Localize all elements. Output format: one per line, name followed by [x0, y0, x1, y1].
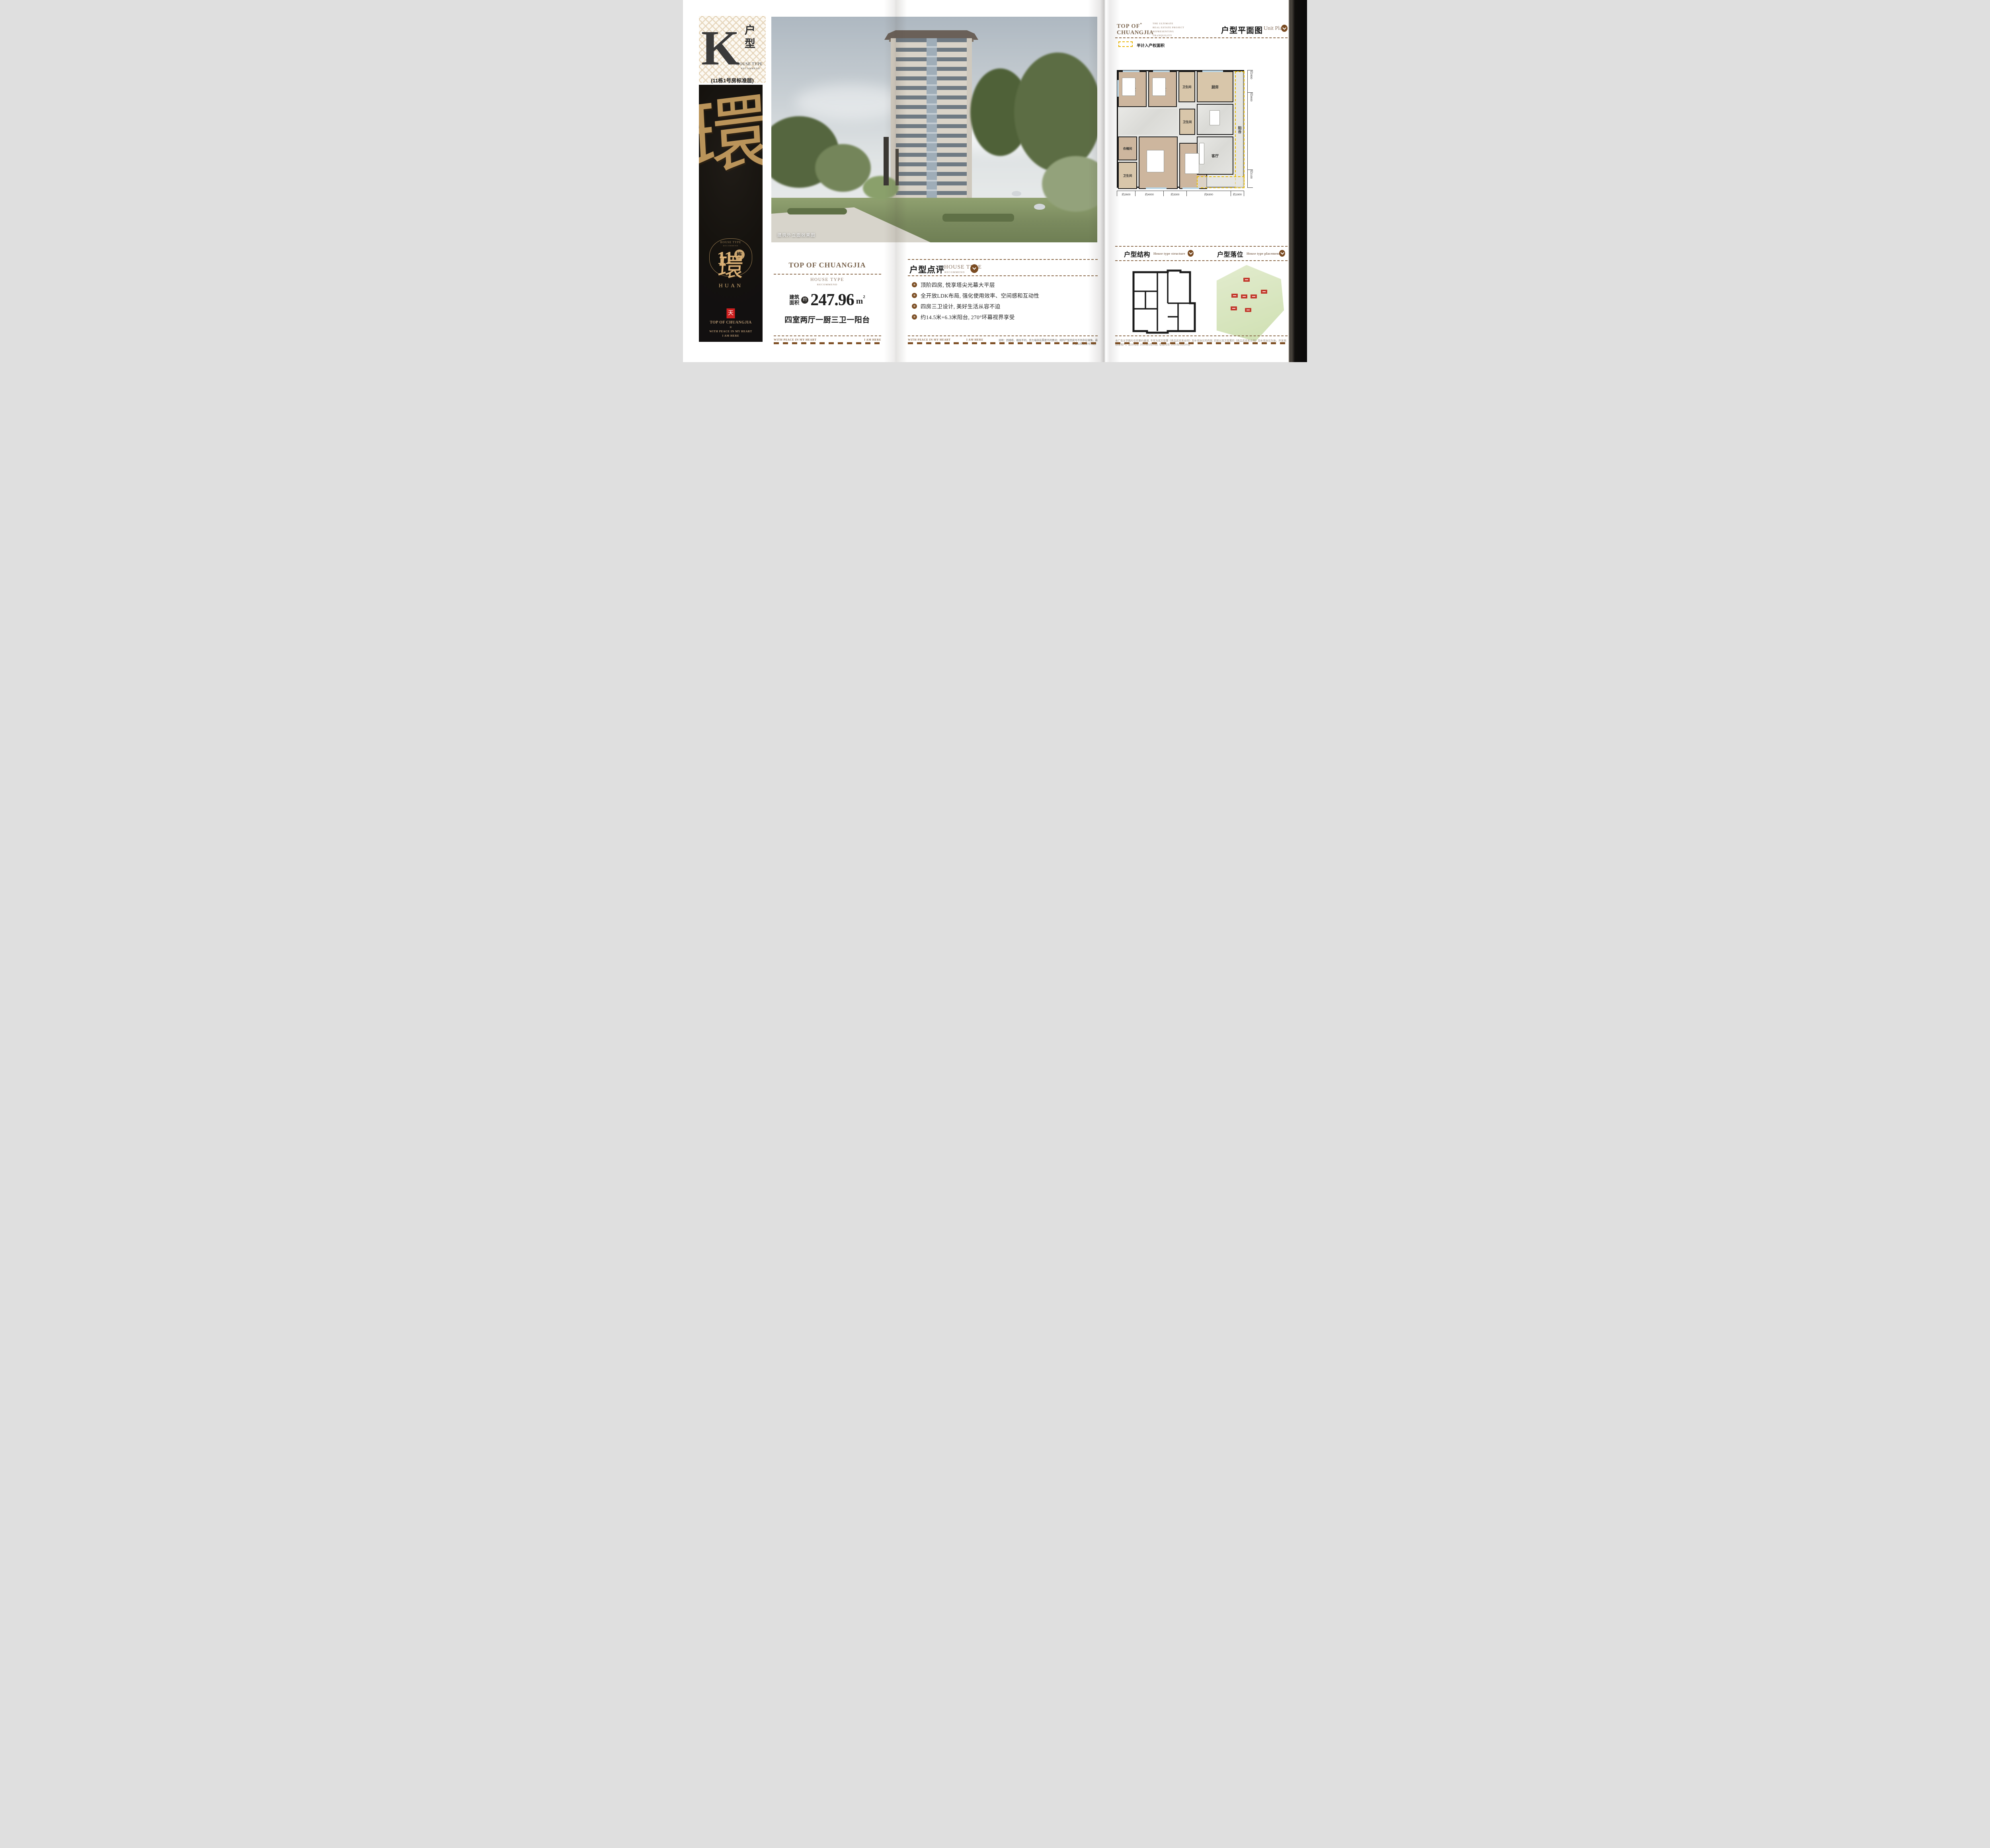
review-bullet-2: ✳ 全开放LDK布局, 强化使用效率、空间感和互动性	[912, 292, 1095, 298]
house-type-cn-char2: 型	[745, 38, 755, 49]
building-block-marker	[1231, 306, 1237, 310]
summary-en: HOUSE TYPE	[773, 277, 882, 282]
building-block-marker	[1251, 294, 1257, 298]
sofa	[1199, 143, 1204, 164]
divider	[1115, 260, 1288, 261]
hedge	[942, 214, 1014, 222]
divider-thick	[774, 342, 881, 344]
building-render-photo: 建筑外立面效果图	[771, 17, 1097, 242]
footer-motto-right: I AM HERE	[966, 338, 983, 341]
huan-pinyin: HUAN	[699, 283, 763, 289]
dimension-label: 约1900	[1231, 192, 1244, 196]
back-cover-edge	[1288, 0, 1307, 362]
building-block-marker-highlighted	[1245, 308, 1251, 312]
room-bathroom-3: 卫生间	[1179, 109, 1195, 135]
divider	[1115, 37, 1288, 38]
half-area-legend-swatch	[1118, 41, 1133, 47]
half-area-legend-label: 半计入产权面积	[1137, 42, 1165, 48]
review-bullet-text: 四房三卫设计, 美好生活从容不迫	[921, 302, 1001, 310]
room-corridor	[1119, 109, 1178, 135]
dimension-segment: 约2800	[1247, 70, 1253, 92]
divider	[908, 335, 1098, 336]
brand-logo-star: *	[1140, 22, 1143, 26]
gate-pylon	[895, 149, 899, 185]
room-cloakroom: 衣帽间	[1118, 136, 1137, 160]
bed	[1152, 78, 1166, 96]
placement-section-title: 户型落位	[1217, 249, 1243, 259]
hedge	[787, 208, 847, 214]
banner-motto-line1: WITH PEACE IN MY HEART	[699, 330, 763, 333]
asterisk-bullet-icon: ✳	[912, 304, 917, 309]
structure-section-en: House type structure	[1153, 251, 1185, 255]
window	[1146, 187, 1167, 189]
tree	[815, 144, 871, 192]
bed	[1147, 150, 1164, 172]
window	[1117, 80, 1119, 97]
room-label: 厨房	[1212, 84, 1219, 90]
dimension-label: 约9600	[1249, 93, 1253, 170]
dimension-label: 约2100	[1249, 170, 1253, 187]
room-label: 衣帽间	[1123, 146, 1132, 151]
summary-brand-title: TOP OF CHUANGJIA	[773, 261, 882, 269]
house-type-badge: K 户 型 HOUSE TYPE RECOMMEND	[699, 16, 766, 83]
review-title: 户型点评	[909, 263, 944, 275]
building-glass-core	[927, 38, 937, 205]
building-block-marker	[1243, 278, 1250, 282]
building-block-marker	[1261, 290, 1267, 294]
room-label: 卫生间	[1182, 85, 1192, 89]
dimension-segment: 约2600	[1117, 191, 1135, 196]
bed	[1185, 153, 1199, 174]
asterisk-bullet-icon: ✳	[912, 314, 917, 320]
chevron-down-icon	[970, 264, 978, 273]
deer-sculpture	[1012, 191, 1021, 196]
room-layout-text: 四室两厅一厨三卫一阳台	[773, 314, 882, 325]
brand-tagline-3: REPRESENTING	[1153, 30, 1174, 33]
chevron-down-icon	[1188, 250, 1194, 257]
divider-thick	[1115, 342, 1288, 344]
house-type-en-sub: RECOMMEND	[741, 68, 760, 70]
dimension-label: 约3300	[1164, 192, 1186, 196]
window	[1182, 187, 1199, 189]
building-block-marker	[1231, 294, 1238, 298]
placement-site-map	[1209, 263, 1284, 341]
divider	[1115, 246, 1288, 247]
badge-subtitle: (11栋1号房标准层)	[694, 76, 771, 84]
red-seal-icon: 天	[727, 308, 735, 318]
asterisk-bullet-icon: ✳	[912, 293, 917, 298]
review-bullet-4: ✳ 约14.5米+6.3米阳台, 270°环幕视界享受	[912, 314, 1095, 320]
divider	[908, 259, 1098, 260]
banner-frame-en: HOUSE TYPE	[699, 241, 763, 244]
area-label: 建筑 面积	[789, 294, 799, 306]
chevron-down-icon	[1281, 25, 1288, 32]
area-unit: m2	[856, 294, 865, 306]
banner-motto-line2: I AM HERE	[699, 334, 763, 337]
tree	[1014, 53, 1097, 172]
floor-plan: 卧室 卧室 卫生间 厨房 卫生间 餐厅 衣帽间 卫生间 主卧 卧室 客厅 阳台	[1117, 70, 1244, 188]
placement-section-en: House type placement	[1247, 251, 1280, 255]
house-type-en: HOUSE TYPE	[736, 62, 763, 66]
brochure-spread: K 户 型 HOUSE TYPE RECOMMEND (11栋1号房标准层) 環…	[683, 0, 1307, 362]
cloud	[795, 84, 907, 120]
area-unit-m: m	[856, 296, 863, 306]
chevron-down-icon	[1279, 250, 1285, 257]
footer-motto-left: WITH PEACE IN MY HEART	[774, 338, 817, 341]
room-balcony-terrace	[1197, 176, 1245, 188]
house-type-cn: 户 型	[745, 25, 755, 49]
dimension-label: 约2600	[1117, 192, 1135, 196]
room-bathroom-2: 卫生间	[1118, 162, 1137, 189]
brand-logo-line2: CHUANGJIA	[1117, 29, 1153, 36]
house-type-letter: K	[701, 18, 739, 78]
review-en-sub: RECOMMEND	[944, 271, 965, 274]
building-banner: 環 HOUSE TYPE RECOMMEND 11栋 環 HUAN 天 TOP …	[699, 85, 763, 342]
brand-logo-text1: TOP OF	[1117, 23, 1140, 29]
review-bullet-text: 全开放LDK布局, 强化使用效率、空间感和互动性	[921, 291, 1039, 299]
footer-motto-left: WITH PEACE IN MY HEART	[908, 338, 951, 341]
dimension-segment: 约4000	[1135, 191, 1163, 196]
brand-tagline-2: REAL ESTATE PROJECT	[1153, 26, 1184, 29]
banner-frame-sub: RECOMMEND	[699, 245, 763, 247]
divider-thick	[908, 342, 1098, 344]
area-label-top: 建筑	[789, 294, 799, 300]
review-bullet-1: ✳ 顶阶四房, 悦享塔尖光幕大平层	[912, 281, 1095, 288]
area-label-bottom: 面积	[789, 300, 799, 306]
divider	[774, 274, 881, 275]
window	[1123, 70, 1139, 72]
dimension-label: 约2800	[1249, 70, 1253, 92]
photo-caption: 建筑外立面效果图	[777, 232, 816, 238]
deer-sculpture	[1034, 204, 1045, 210]
brand-logo-line1: TOP OF*	[1117, 22, 1142, 30]
divider	[908, 275, 1098, 276]
brand-tagline-4: TRANQUILITY	[1153, 34, 1172, 37]
house-type-cn-char1: 户	[745, 25, 755, 36]
dimension-column-right: 约2800 约9600 约2100	[1247, 70, 1254, 188]
dimension-segment: 约1900	[1231, 191, 1244, 196]
room-label: 客厅	[1212, 153, 1219, 158]
bed	[1122, 78, 1135, 96]
area-row: 建筑 面积 约 247.96 m2	[773, 292, 882, 308]
room-balcony: 阳台	[1235, 71, 1245, 188]
flower-ornament-icon: ✳	[699, 326, 763, 329]
review-bullet-text: 顶阶四房, 悦享塔尖光幕大平层	[921, 281, 995, 289]
building-tower	[891, 38, 972, 205]
dimension-segment: 约2100	[1247, 170, 1253, 188]
mirror-disclaimer-note: 说明：因楼栋、楼层不同，剪力墙存在厚度不同情况；相同户型因房号不同存在镜像。最终…	[997, 338, 1098, 345]
area-value: 247.96	[810, 292, 854, 308]
banner-brand: TOP OF CHUANGJIA	[699, 320, 763, 325]
room-label: 阳台	[1237, 126, 1243, 133]
review-bullet-text: 约14.5米+6.3米阳台, 270°环幕视界享受	[921, 313, 1015, 321]
brand-tagline-1: THE ULTIMATE	[1153, 22, 1173, 25]
room-label: 卫生间	[1123, 173, 1132, 178]
gold-calligraphy-art: 環	[699, 91, 763, 182]
room-kitchen: 厨房	[1197, 71, 1233, 102]
window	[1202, 70, 1223, 72]
unit-plan-title: 户型平面图	[1221, 24, 1263, 35]
review-bullet-3: ✳ 四房三卫设计, 美好生活从容不迫	[912, 303, 1095, 309]
dimension-segment: 约6300	[1186, 191, 1231, 196]
dimension-segment: 约3300	[1163, 191, 1186, 196]
window	[1153, 70, 1170, 72]
divider	[774, 335, 881, 336]
huan-calligraphy: 環	[699, 255, 763, 281]
structure-diagram	[1130, 269, 1197, 334]
summary-en-sub: RECOMMEND	[773, 283, 882, 286]
dimension-label: 约6300	[1187, 192, 1231, 196]
bush	[863, 176, 899, 200]
dimension-row-bottom: 约2600 约4000 约3300 约6300 约1900	[1117, 191, 1244, 198]
footer-motto-right: I AM HERE	[854, 338, 881, 341]
divider	[1115, 335, 1288, 336]
dimension-label: 约4000	[1135, 192, 1163, 196]
gate-pylon	[884, 137, 889, 185]
dining-table	[1210, 110, 1220, 125]
asterisk-bullet-icon: ✳	[912, 282, 917, 287]
room-bathroom-1: 卫生间	[1178, 71, 1195, 102]
dimension-segment: 约9600	[1247, 92, 1253, 170]
area-unit-sup: 2	[863, 294, 865, 299]
approx-badge: 约	[801, 296, 808, 304]
building-block-marker	[1241, 294, 1247, 298]
room-label: 卫生间	[1183, 120, 1192, 124]
structure-section-title: 户型结构	[1124, 249, 1150, 259]
